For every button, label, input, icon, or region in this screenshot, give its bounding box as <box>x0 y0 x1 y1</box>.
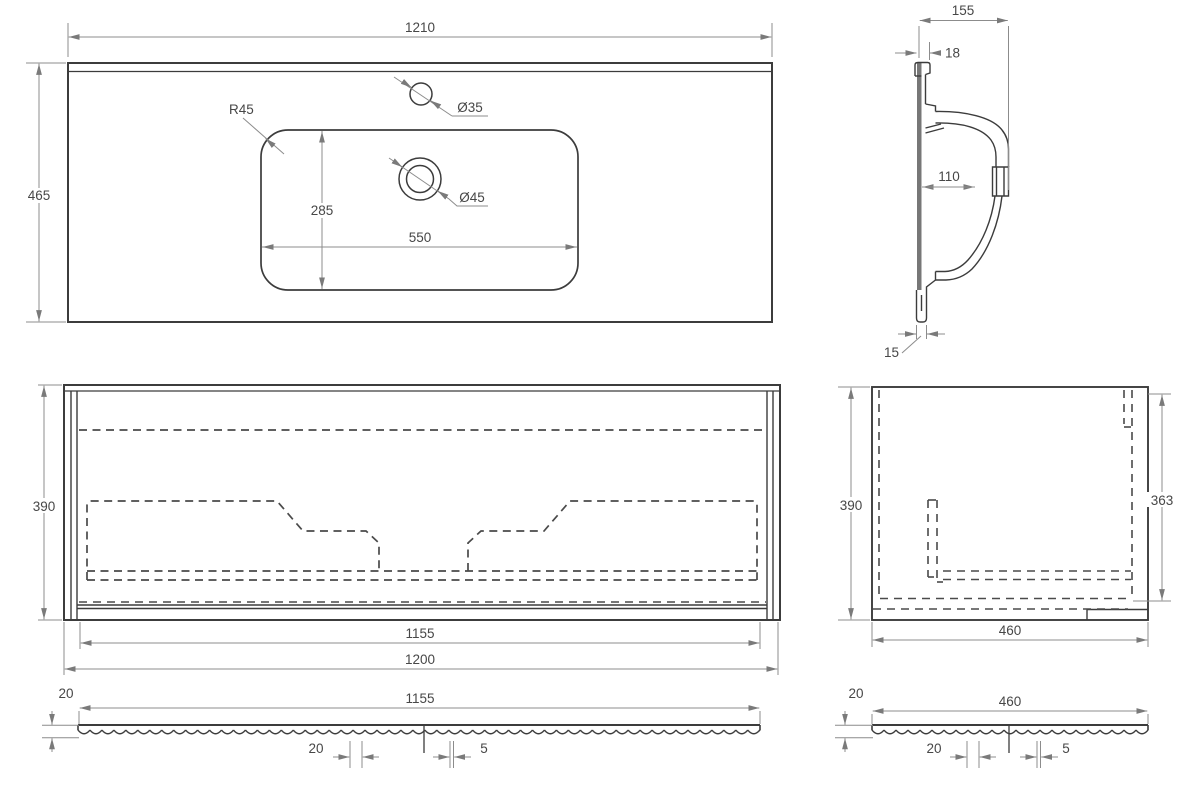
cabinet-front-view <box>64 385 780 620</box>
dim-inner-depth: 110 <box>938 169 960 184</box>
cabinet-side-dimensions <box>838 387 1171 647</box>
cabinet-side-hidden-lines <box>873 390 1132 609</box>
dim-rim-thickness: 18 <box>945 46 960 61</box>
dim-side-flute-pitch: 20 <box>926 741 941 756</box>
fluted-edge <box>78 729 760 739</box>
dim-bottom-lip: 15 <box>884 345 899 360</box>
dim-side-depth: 460 <box>999 623 1022 638</box>
dim-section-depth: 155 <box>952 3 975 18</box>
basin-section-dimensions <box>895 21 1009 354</box>
dim-faucet-hole: Ø35 <box>457 100 483 115</box>
dim-countertop-width: 1210 <box>405 20 435 35</box>
cabinet-front-hidden-lines <box>79 430 766 602</box>
countertop-top-view-labels: 1210 465 R45 Ø35 Ø45 285 550 <box>24 20 485 245</box>
vanity-technical-drawing: 1210 465 R45 Ø35 Ø45 285 550 <box>0 0 1200 800</box>
dim-side-inner-height: 363 <box>1151 493 1174 508</box>
dim-side-height: 390 <box>840 498 863 513</box>
dim-side-flute-gap: 5 <box>1062 741 1070 756</box>
dim-basin-depth: 285 <box>311 203 334 218</box>
side-panel-section-view <box>872 725 1148 753</box>
countertop-top-view <box>68 63 772 322</box>
dim-drain-hole: Ø45 <box>459 190 485 205</box>
dim-drawer-front-width: 1155 <box>405 691 434 706</box>
side-panel-section-dimensions <box>835 711 1148 768</box>
dim-side-panel-width: 460 <box>999 694 1022 709</box>
cabinet-front-labels: 390 1155 1200 <box>28 498 435 667</box>
faucet-hole <box>410 83 432 105</box>
dim-countertop-depth: 465 <box>28 188 51 203</box>
basin-section-view <box>915 62 1009 322</box>
dim-front-inner-width: 1155 <box>405 626 434 641</box>
dim-flute-gap: 5 <box>480 741 488 756</box>
technical-drawing-page: 1210 465 R45 Ø35 Ø45 285 550 <box>0 0 1200 800</box>
cabinet-side-labels: 390 363 460 <box>835 492 1179 638</box>
dim-flute-pitch: 20 <box>308 741 323 756</box>
drawer-front-section-view <box>78 725 760 753</box>
fluted-edge <box>872 729 1148 739</box>
countertop-top-view-dimensions <box>26 23 772 322</box>
wall-line <box>917 62 922 290</box>
dim-front-total-width: 1200 <box>405 652 435 667</box>
dim-drawer-front-thickness: 20 <box>58 686 73 701</box>
dim-basin-width: 550 <box>409 230 432 245</box>
dim-front-height: 390 <box>33 499 56 514</box>
dim-side-panel-thickness: 20 <box>848 686 863 701</box>
cabinet-side-view <box>872 387 1148 620</box>
dim-basin-corner-radius: R45 <box>229 102 254 117</box>
